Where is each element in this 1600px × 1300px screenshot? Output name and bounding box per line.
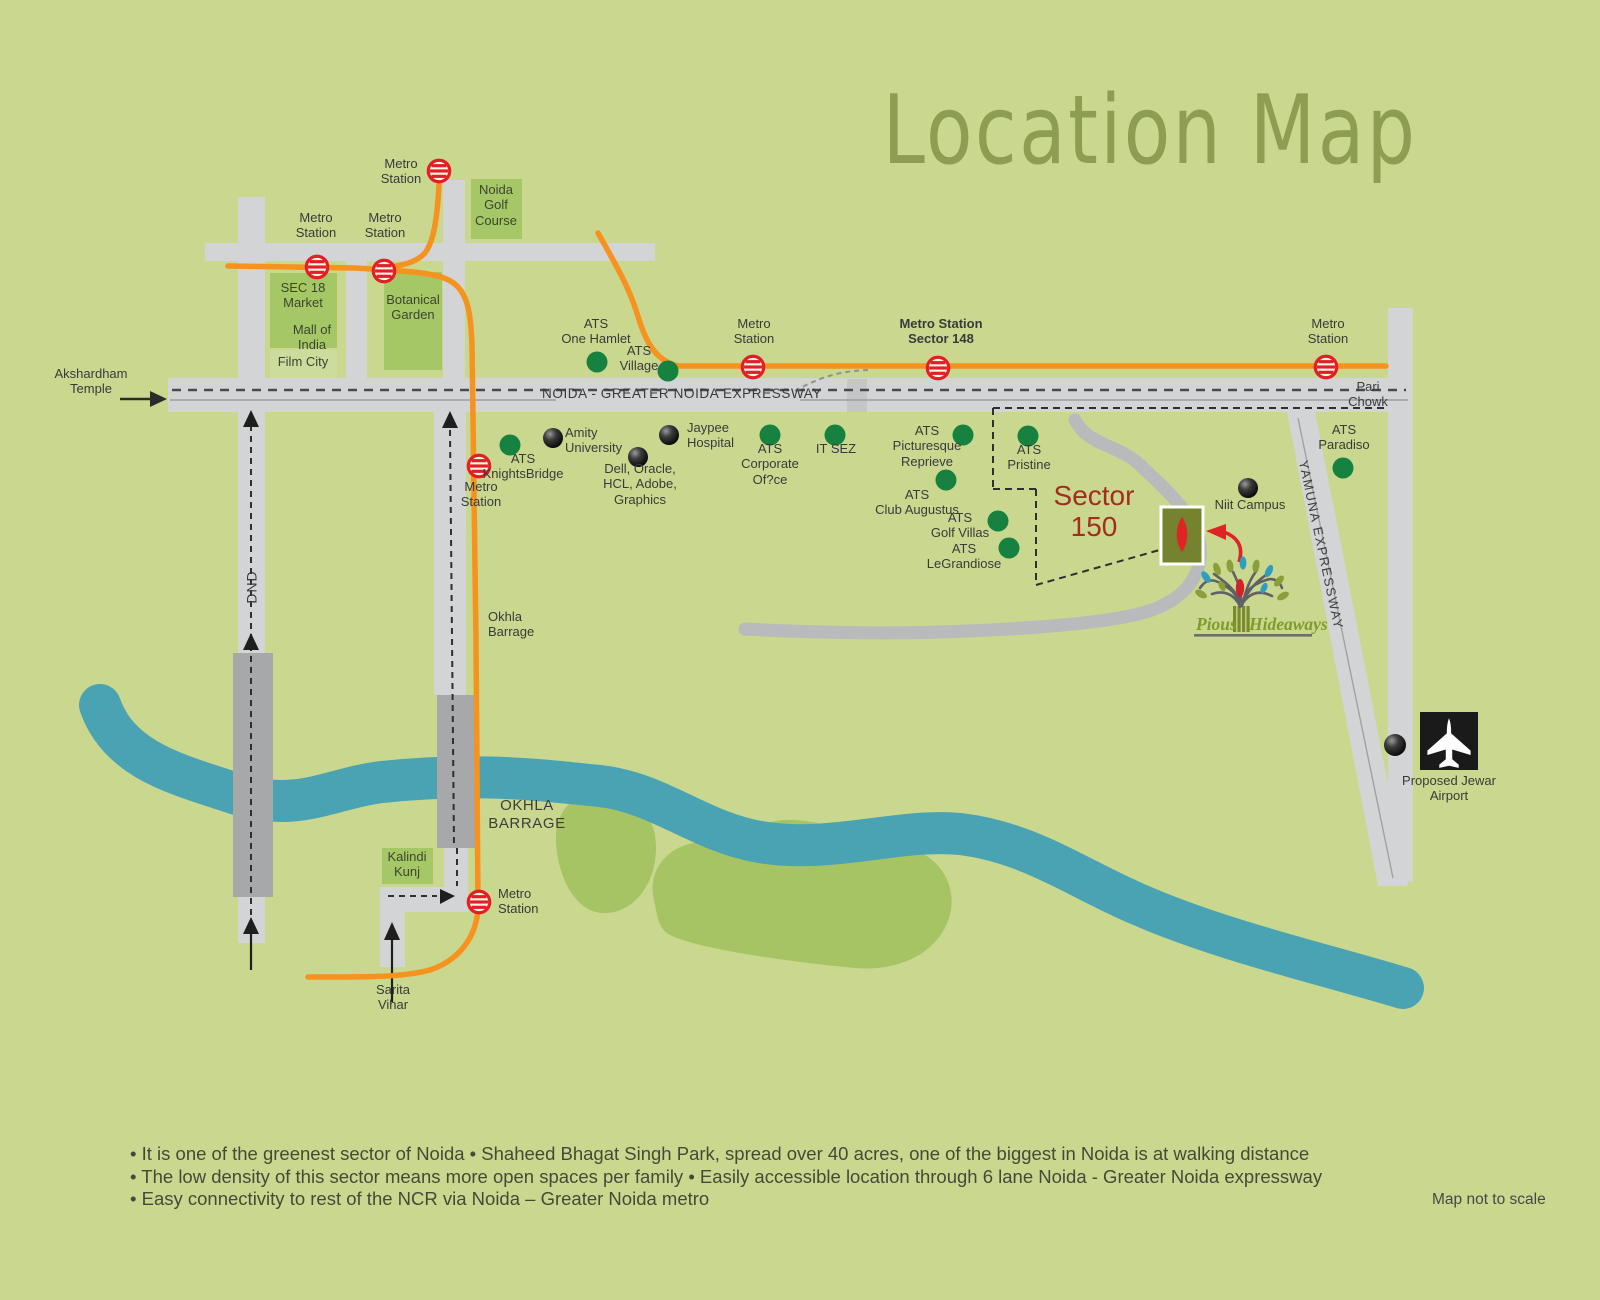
label-sarita-vihar: Sarita Vihar bbox=[376, 982, 410, 1013]
expressway-connector bbox=[847, 379, 867, 412]
logo-text-hideaways: Hideaways bbox=[1249, 614, 1328, 635]
logo-text-pious: Pious bbox=[1196, 614, 1237, 635]
label-noida-greater-noida-expressway: NOIDA - GREATER NOIDA EXPRESSWAY bbox=[542, 386, 822, 402]
label-mall-of-india: Mall of India bbox=[293, 322, 331, 353]
label-ats-picturesque-reprieve: ATS Picturesque Reprieve bbox=[893, 423, 962, 469]
dnd-bridge bbox=[233, 653, 273, 897]
label-metro-station: Metro Station bbox=[296, 210, 336, 241]
label-ats-golf-villas: ATS Golf Villas bbox=[931, 510, 989, 541]
ats-dot bbox=[988, 511, 1009, 532]
label-it-sez: IT SEZ bbox=[816, 441, 856, 456]
label-metro-station: Metro Station bbox=[365, 210, 405, 241]
location-map: Location Map Akshardham Temple Metro Sta… bbox=[0, 0, 1600, 1300]
label-noida-golf-course: Noida Golf Course bbox=[475, 182, 517, 228]
note-line: It is one of the greenest sector of Noid… bbox=[130, 1143, 1322, 1166]
label-sec18-market: SEC 18 Market bbox=[281, 280, 326, 311]
site-marker bbox=[1161, 507, 1203, 564]
metro-icon bbox=[742, 356, 763, 377]
airport-icon bbox=[1420, 712, 1478, 770]
landmark-dot bbox=[1238, 478, 1258, 498]
label-ats-corporate-office: ATS Corporate Of?ce bbox=[741, 441, 799, 487]
note-line: The low density of this sector means mor… bbox=[130, 1166, 1322, 1189]
label-ats-knightsbridge: ATS KnightsBridge bbox=[483, 451, 564, 482]
map-not-to-scale-note: Map not to scale bbox=[1432, 1191, 1546, 1209]
label-botanical-garden: Botanical Garden bbox=[386, 292, 439, 323]
landmark-dot bbox=[543, 428, 563, 448]
label-proposed-jewar-airport: Proposed Jewar Airport bbox=[1402, 773, 1496, 804]
ats-dot bbox=[658, 361, 679, 382]
label-ats-legrandiose: ATS LeGrandiose bbox=[927, 541, 1001, 572]
label-metro-station: Metro Station bbox=[498, 886, 538, 917]
label-dnd: DND bbox=[244, 570, 261, 603]
label-metro-station: Metro Station bbox=[381, 156, 421, 187]
landmark-dot bbox=[659, 425, 679, 445]
metro-icon bbox=[306, 256, 327, 277]
label-metro-station-sector-148: Metro Station Sector 148 bbox=[899, 316, 982, 347]
label-metro-station: Metro Station bbox=[461, 479, 501, 510]
label-niit-campus: Niit Campus bbox=[1215, 497, 1286, 512]
page-title: Location Map bbox=[883, 75, 1418, 187]
notes-list: It is one of the greenest sector of Noid… bbox=[130, 1143, 1322, 1211]
label-akshardham-temple: Akshardham Temple bbox=[55, 366, 128, 397]
label-amity-university: Amity University bbox=[565, 425, 622, 456]
label-sector-150: Sector 150 bbox=[1054, 480, 1135, 543]
metro-icon bbox=[373, 260, 394, 281]
metro-icon bbox=[1315, 356, 1336, 377]
label-pari-chowk: Pari Chowk bbox=[1348, 379, 1388, 410]
label-ats-pristine: ATS Pristine bbox=[1007, 442, 1050, 473]
label-ats-village: ATS Village bbox=[620, 343, 659, 374]
ats-dot bbox=[1333, 458, 1354, 479]
metro-icon bbox=[927, 357, 948, 378]
label-okhla-barrage-small: Okhla Barrage bbox=[488, 609, 534, 640]
metro-icon bbox=[428, 160, 449, 181]
ats-dot bbox=[999, 538, 1020, 559]
ats-dot bbox=[587, 352, 608, 373]
label-ats-paradiso: ATS Paradiso bbox=[1318, 422, 1369, 453]
label-jaypee-hospital: Jaypee Hospital bbox=[687, 420, 734, 451]
site-arrow-icon bbox=[1206, 524, 1241, 562]
label-dell-oracle-hcl: Dell, Oracle, HCL, Adobe, Graphics bbox=[603, 461, 677, 507]
label-kalindi-kunj: Kalindi Kunj bbox=[387, 849, 426, 880]
landmark-dot bbox=[1384, 734, 1406, 756]
label-film-city: Film City bbox=[278, 354, 329, 369]
map-graphics bbox=[0, 0, 1600, 1300]
metro-icon bbox=[468, 891, 489, 912]
label-okhla-barrage: OKHLA BARRAGE bbox=[488, 797, 566, 832]
note-line: Easy connectivity to rest of the NCR via… bbox=[130, 1188, 1322, 1211]
okhla-barrage-structure bbox=[437, 695, 475, 848]
label-metro-station: Metro Station bbox=[1308, 316, 1348, 347]
label-metro-station: Metro Station bbox=[734, 316, 774, 347]
